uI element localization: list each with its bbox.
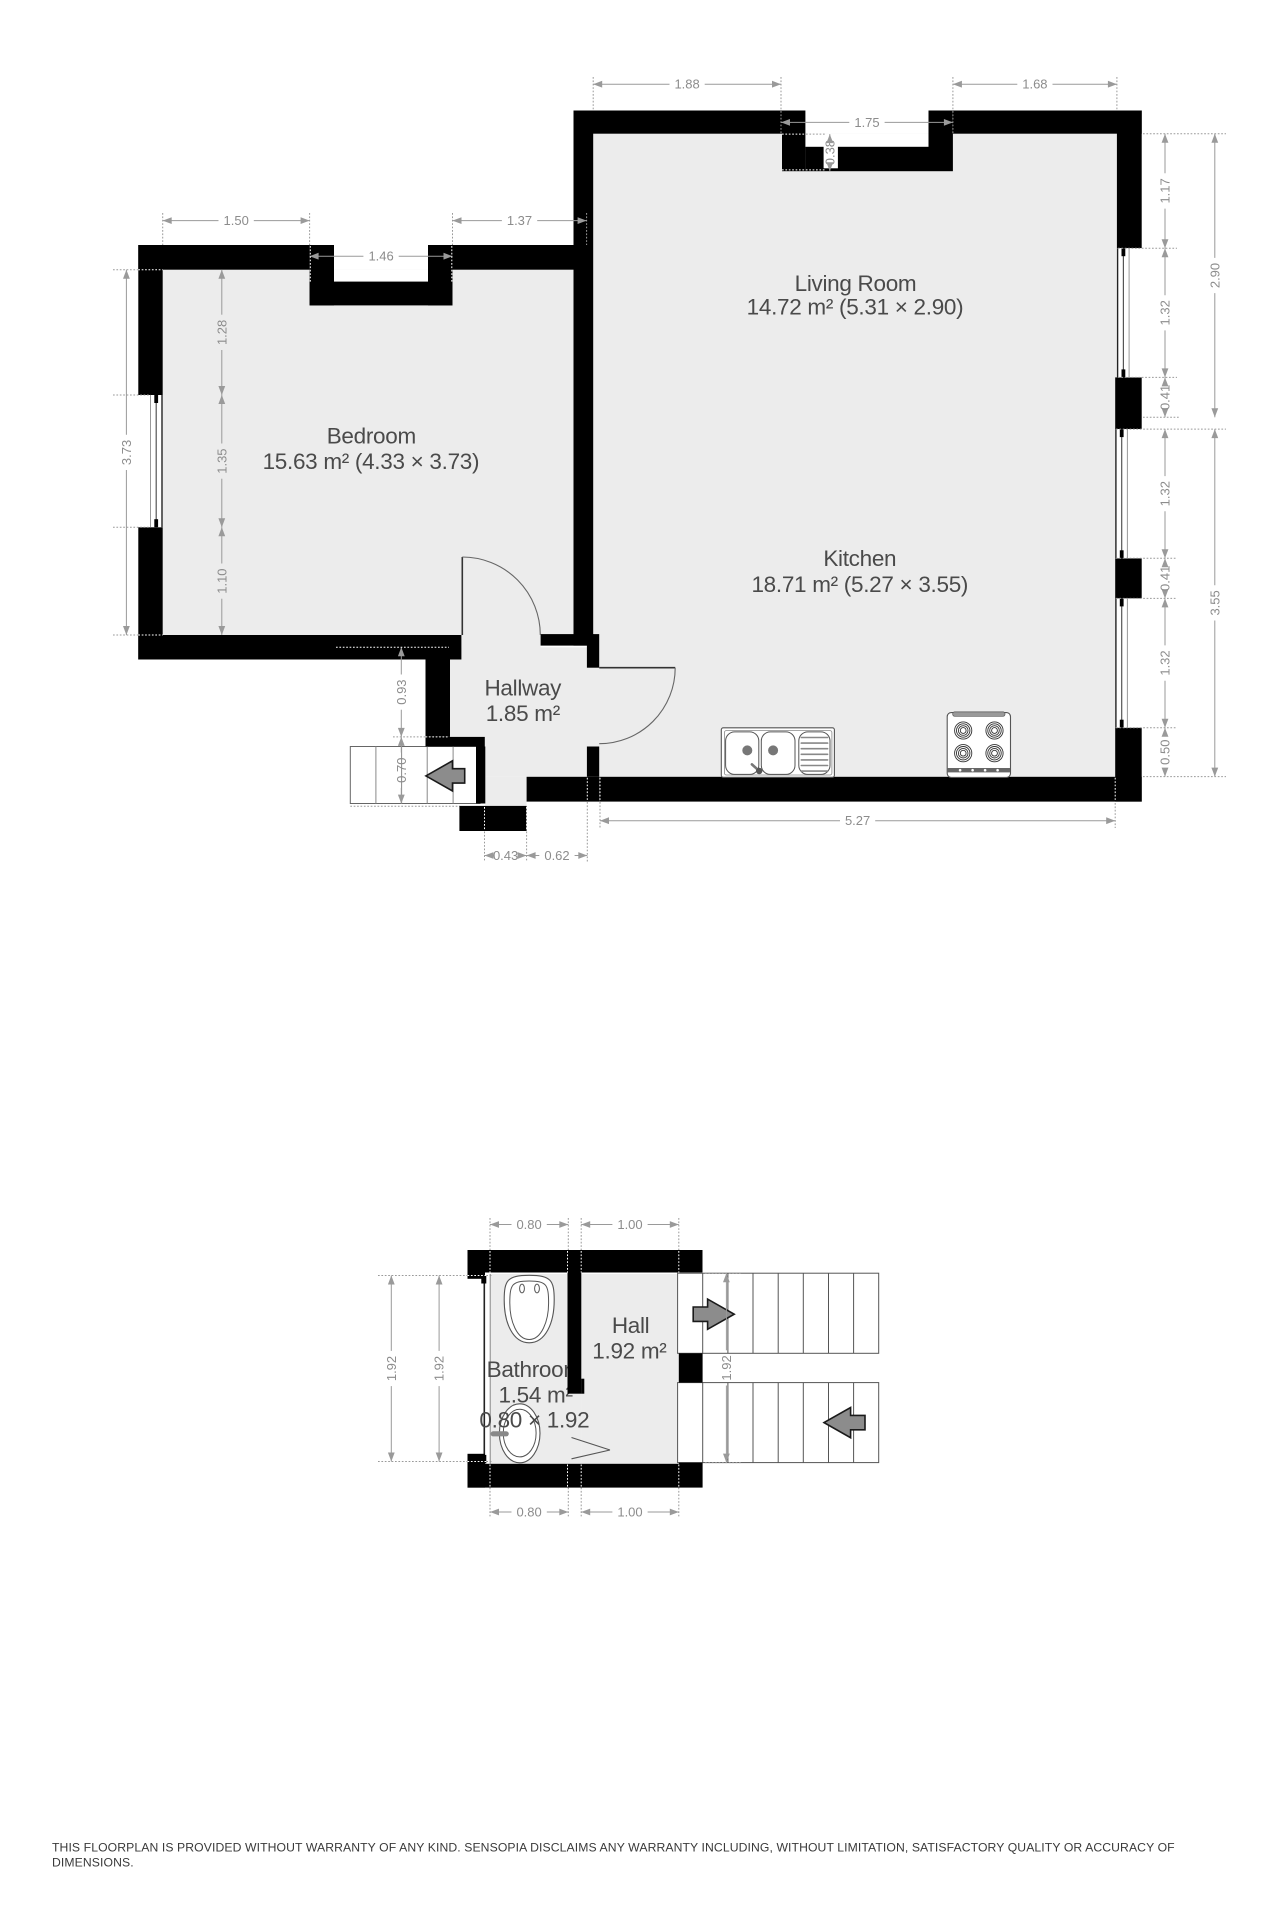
svg-text:Hall: Hall — [612, 1313, 650, 1338]
svg-text:1.28: 1.28 — [214, 320, 229, 345]
svg-text:1.32: 1.32 — [1158, 650, 1173, 675]
svg-text:1.00: 1.00 — [617, 1505, 642, 1520]
svg-text:DIMENSIONS.: DIMENSIONS. — [52, 1856, 134, 1870]
svg-text:0.38: 0.38 — [822, 140, 837, 165]
svg-text:5.27: 5.27 — [845, 813, 870, 828]
svg-text:14.72 m² (5.31 × 2.90): 14.72 m² (5.31 × 2.90) — [747, 295, 964, 320]
svg-text:18.71 m² (5.27 × 3.55): 18.71 m² (5.27 × 3.55) — [751, 572, 968, 597]
svg-text:0.43: 0.43 — [493, 848, 518, 863]
svg-text:15.63 m² (4.33 × 3.73): 15.63 m² (4.33 × 3.73) — [263, 449, 480, 474]
svg-text:1.17: 1.17 — [1158, 178, 1173, 203]
svg-text:1.32: 1.32 — [1158, 300, 1173, 325]
svg-text:3.73: 3.73 — [119, 440, 134, 465]
svg-text:1.75: 1.75 — [854, 115, 879, 130]
svg-text:0.93: 0.93 — [394, 679, 409, 704]
svg-text:0.41: 0.41 — [1158, 566, 1173, 591]
svg-text:1.54 m²: 1.54 m² — [499, 1382, 574, 1407]
svg-text:1.00: 1.00 — [617, 1217, 642, 1232]
svg-text:0.80: 0.80 — [516, 1505, 541, 1520]
svg-text:1.35: 1.35 — [214, 448, 229, 473]
svg-text:1.68: 1.68 — [1022, 77, 1047, 92]
svg-text:1.85 m²: 1.85 m² — [486, 701, 561, 726]
svg-text:1.46: 1.46 — [368, 249, 393, 264]
svg-text:1.92: 1.92 — [432, 1356, 447, 1381]
svg-text:1.92: 1.92 — [719, 1355, 734, 1380]
svg-text:Kitchen: Kitchen — [823, 546, 896, 571]
svg-text:0.70: 0.70 — [394, 758, 409, 783]
svg-text:1.37: 1.37 — [507, 213, 532, 228]
svg-text:Living Room: Living Room — [795, 271, 917, 296]
svg-text:0.80 × 1.92: 0.80 × 1.92 — [479, 1408, 589, 1433]
svg-text:0.62: 0.62 — [544, 848, 569, 863]
svg-text:1.92: 1.92 — [384, 1356, 399, 1381]
svg-text:1.50: 1.50 — [224, 213, 249, 228]
svg-text:1.32: 1.32 — [1158, 481, 1173, 506]
svg-text:3.55: 3.55 — [1207, 590, 1222, 615]
svg-text:2.90: 2.90 — [1207, 263, 1222, 288]
svg-text:0.41: 0.41 — [1158, 385, 1173, 410]
svg-text:0.80: 0.80 — [516, 1217, 541, 1232]
svg-text:Bedroom: Bedroom — [327, 424, 416, 449]
svg-text:1.92 m²: 1.92 m² — [592, 1339, 667, 1364]
svg-text:0.50: 0.50 — [1158, 740, 1173, 765]
svg-text:1.10: 1.10 — [214, 568, 229, 593]
svg-text:THIS FLOORPLAN IS PROVIDED WIT: THIS FLOORPLAN IS PROVIDED WITHOUT WARRA… — [52, 1841, 1175, 1855]
svg-text:Hallway: Hallway — [484, 676, 562, 701]
svg-text:1.88: 1.88 — [674, 77, 699, 92]
